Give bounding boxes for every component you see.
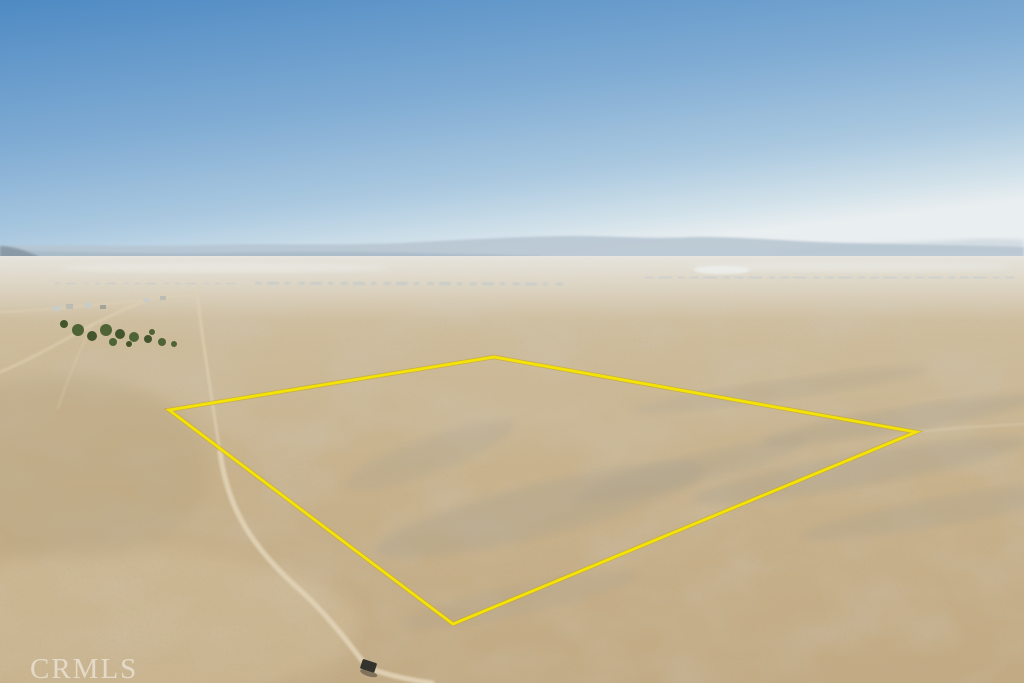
tree: [109, 338, 117, 346]
building: [84, 303, 92, 308]
building: [66, 304, 73, 309]
tree: [171, 341, 177, 347]
tree: [115, 329, 125, 339]
terrain-speckles-far: [0, 258, 1024, 328]
building: [143, 298, 150, 302]
building: [52, 306, 61, 311]
tree: [100, 324, 112, 336]
tree: [129, 332, 139, 342]
building: [100, 305, 106, 309]
sky: [0, 0, 1024, 266]
tree: [126, 341, 132, 347]
terrain-speckles-near: [0, 460, 1024, 683]
tree: [149, 329, 155, 335]
tree: [158, 338, 166, 346]
tree: [60, 320, 68, 328]
aerial-photo-canvas: CRMLS: [0, 0, 1024, 683]
tree: [87, 331, 97, 341]
crmls-watermark: CRMLS: [30, 653, 138, 683]
tree: [72, 324, 84, 336]
tree: [144, 335, 152, 343]
terrain-speckles-mid: [0, 320, 1024, 470]
aerial-photo: CRMLS: [0, 0, 1024, 683]
building: [160, 296, 166, 300]
